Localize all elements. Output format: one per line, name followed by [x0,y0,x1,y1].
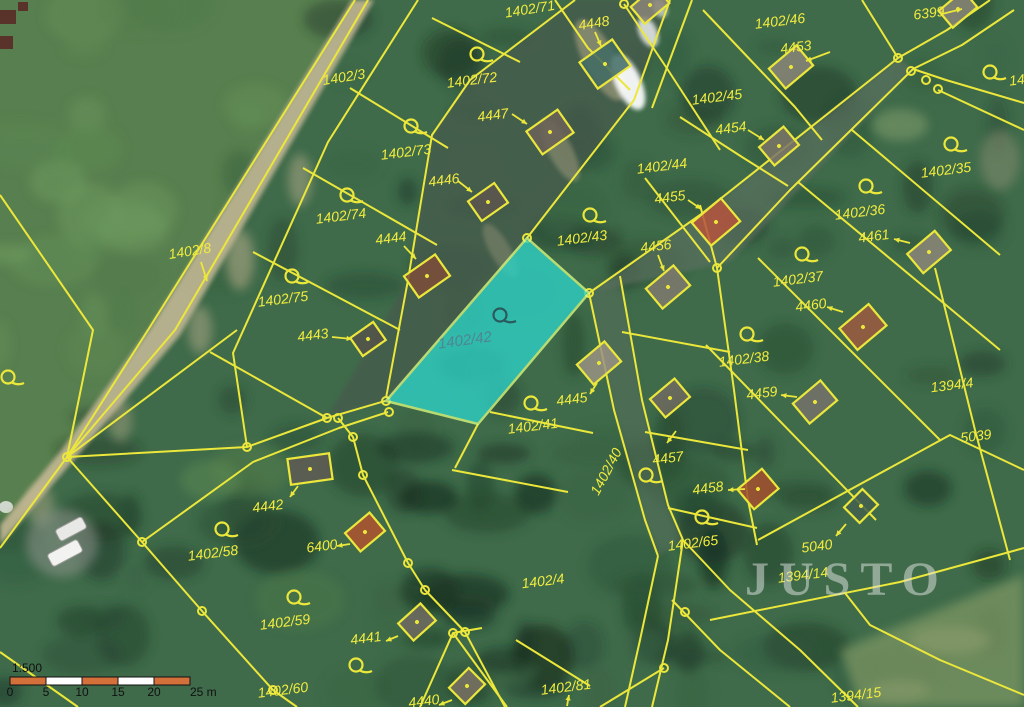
parcel-number-label: 14 [1008,71,1024,89]
scale-segment [46,677,82,685]
justo-watermark: JUSTO [745,553,949,606]
parcel-number-label: 4440 [407,691,440,707]
scale-tick-label: 10 [75,685,89,699]
edge-marker [0,36,13,49]
scale-segment [10,677,46,685]
scale-tick-label: 20 [147,685,161,699]
terrain-patch [980,130,1020,190]
scale-ratio: 1:500 [12,661,42,675]
scale-bar-segments [10,677,190,685]
edge-marker [18,2,28,11]
driveway [26,509,98,577]
scale-segment [154,677,190,685]
scale-tick-label: 0 [7,685,14,699]
scale-tick-label: 15 [111,685,125,699]
cadastral-map-screenshot: 1402/7144481402/46445363991402/454454140… [0,0,1024,707]
scale-tick-label: 5 [43,685,50,699]
scale-segment [82,677,118,685]
terrain-patch [288,154,312,206]
edge-marker [0,10,16,24]
building-symbol [287,453,332,485]
scale-tick-label: 25 m [190,685,217,699]
cadastral-map: 1402/7144481402/46445363991402/454454140… [0,0,1024,707]
scale-segment [118,677,154,685]
terrain-patch [872,109,928,141]
